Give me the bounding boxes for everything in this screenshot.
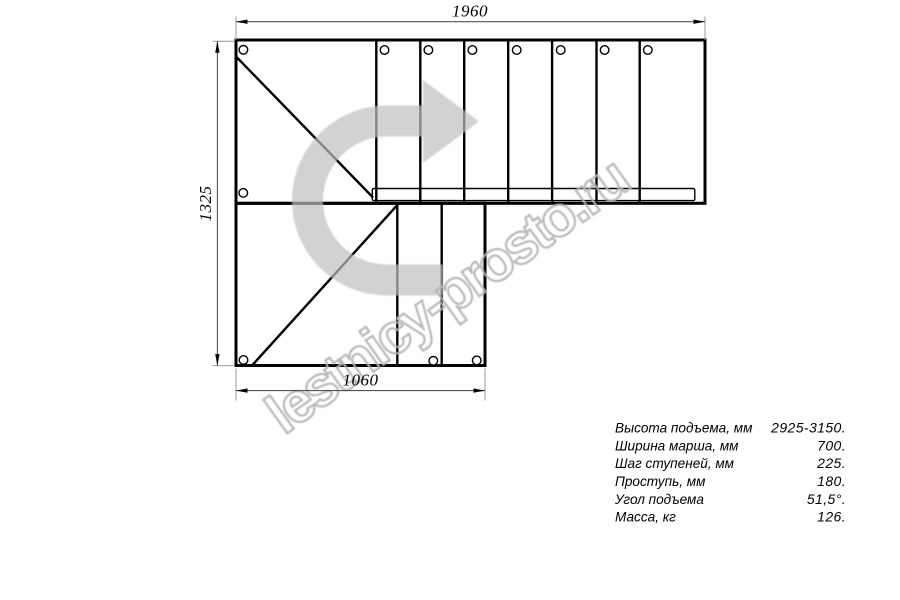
svg-text:Высота подъема, мм: Высота подъема, мм <box>615 421 753 436</box>
svg-text:Проступь, мм: Проступь, мм <box>615 474 706 489</box>
svg-text:2925-3150.: 2925-3150. <box>770 420 846 436</box>
svg-text:Масса, кг: Масса, кг <box>615 510 676 525</box>
svg-text:225.: 225. <box>816 455 846 471</box>
svg-text:Ширина марша, мм: Ширина марша, мм <box>615 438 739 453</box>
svg-text:Угол подъема: Угол подъема <box>614 492 704 507</box>
svg-text:180.: 180. <box>817 473 846 489</box>
svg-text:1060: 1060 <box>343 371 379 390</box>
svg-text:Шаг ступеней, мм: Шаг ступеней, мм <box>615 456 735 471</box>
svg-text:1325: 1325 <box>196 186 215 222</box>
svg-text:51,5°.: 51,5°. <box>807 491 846 507</box>
svg-text:700.: 700. <box>817 437 846 453</box>
svg-text:126.: 126. <box>817 509 846 525</box>
svg-text:1960: 1960 <box>452 2 488 21</box>
